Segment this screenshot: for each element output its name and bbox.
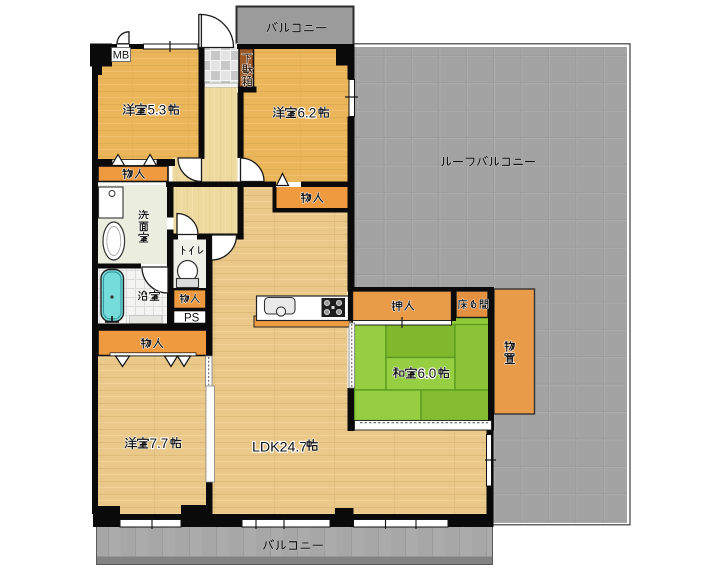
svg-text:5.3: 5.3 [148,103,167,118]
svg-text:6.0: 6.0 [418,366,437,381]
svg-text:6.2: 6.2 [298,106,317,121]
svg-text:PS: PS [184,313,200,325]
svg-text:7.7: 7.7 [150,436,169,451]
svg-text:LDK24.7: LDK24.7 [252,440,307,456]
svg-text:MB: MB [113,50,130,62]
